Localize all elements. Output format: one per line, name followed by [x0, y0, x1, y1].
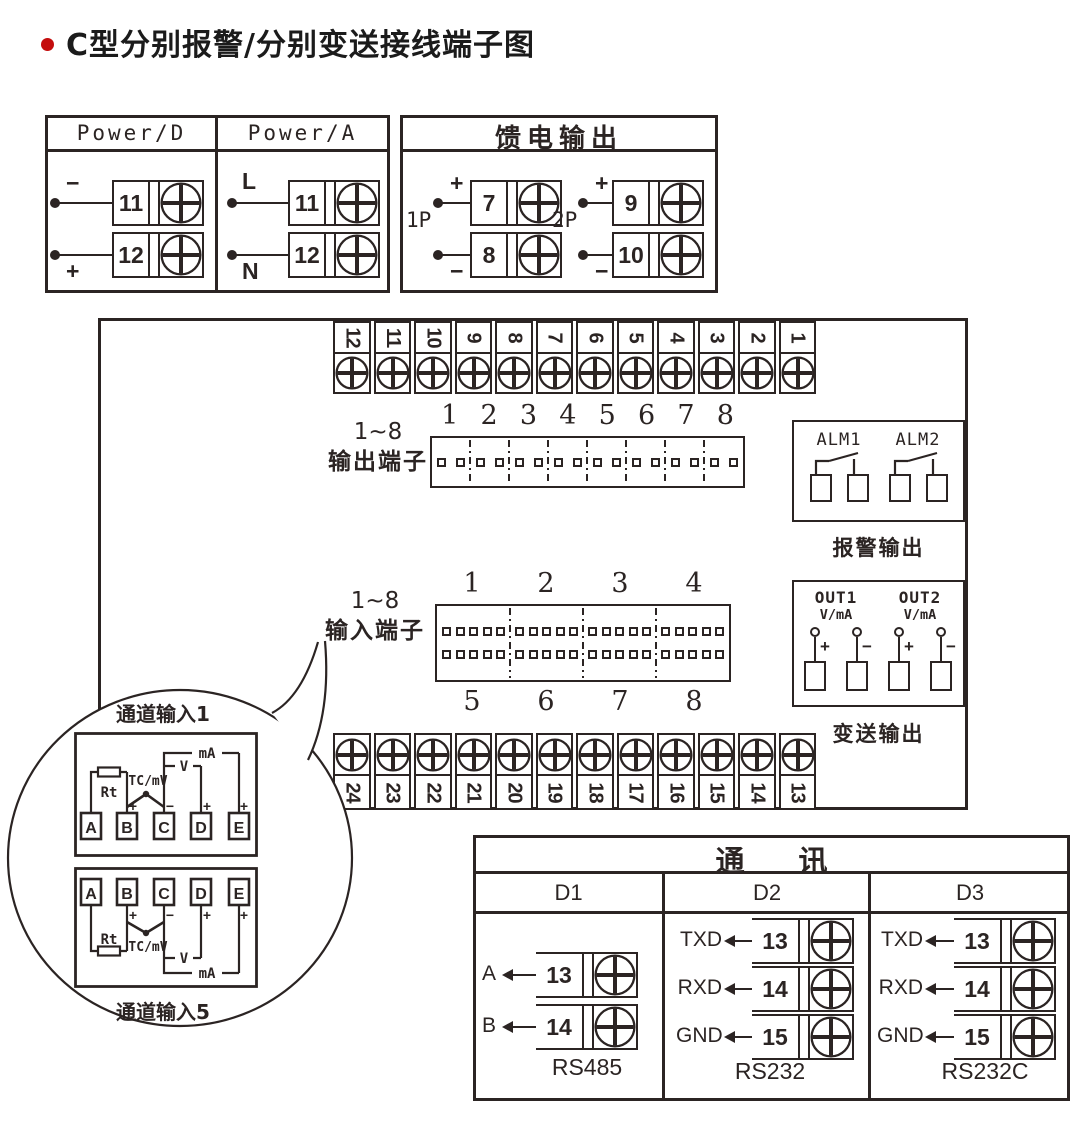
polarity-sign: +	[450, 170, 463, 197]
pin-terminal	[846, 661, 868, 691]
screw-icon	[333, 352, 371, 394]
transmit-group-1: OUT1 V/mA + −	[800, 588, 872, 691]
out-pin-plus: +	[885, 627, 913, 691]
terminal-number: 13	[954, 920, 1000, 962]
output-connector-cell	[626, 438, 665, 486]
transmit-caption: 变送输出	[792, 718, 965, 748]
comm-column-divider	[662, 874, 665, 1101]
group-label: 1P	[406, 208, 431, 232]
out-label: OUT1	[800, 588, 872, 607]
terminal-clamp	[324, 182, 336, 224]
alarm-caption: 报警输出	[792, 532, 965, 562]
svg-text:+: +	[203, 907, 211, 923]
comm-col-d1: D1	[473, 880, 664, 906]
terminal-number: 14	[954, 968, 1000, 1010]
pin-terminal	[930, 661, 952, 691]
strip-cell: 20	[495, 733, 533, 811]
wire	[55, 202, 112, 205]
screw-icon	[594, 1006, 638, 1048]
terminal-clamp	[148, 182, 160, 224]
svg-text:A: A	[85, 886, 97, 903]
terminal-number: 15	[752, 1016, 798, 1058]
feed-output-title: 馈电输出	[400, 118, 718, 155]
line-sign: L	[242, 168, 256, 195]
polarity-sign: +	[66, 258, 79, 285]
svg-text:−: −	[166, 798, 174, 814]
terminal-number: 11	[288, 182, 324, 224]
output-connector-cell	[588, 438, 627, 486]
output-connector-cell	[432, 438, 471, 486]
terminal-number: 13	[752, 920, 798, 962]
terminal-block: 13	[536, 952, 638, 998]
pin-circle-icon	[894, 627, 904, 637]
strip-cell: 1	[779, 321, 817, 394]
comm-signal-label: TXD	[877, 928, 923, 952]
terminal-block: 15	[752, 1014, 854, 1060]
svg-text:+: +	[203, 798, 211, 814]
terminal-number: 12	[112, 234, 148, 276]
terminal-block: 13	[954, 918, 1056, 964]
input-connector-cell	[510, 606, 583, 680]
wire	[55, 254, 112, 257]
output-numbers: 12 34 56 78	[430, 400, 745, 431]
screw-icon	[1012, 1016, 1056, 1058]
arrow-left-icon	[504, 974, 536, 977]
relay-terminal	[847, 474, 869, 502]
terminal-number: 11	[112, 182, 148, 224]
comm-signal-label: RXD	[676, 976, 722, 1000]
arrow-left-icon	[726, 988, 752, 991]
channel1-caption: 通道输入1	[88, 698, 238, 727]
relay-terminals	[810, 474, 869, 502]
terminal-block: 9	[612, 180, 704, 226]
svg-text:−: −	[166, 907, 174, 923]
terminal-clamp	[798, 920, 810, 962]
svg-text:TC/mV: TC/mV	[128, 774, 167, 789]
wire	[583, 202, 612, 205]
polarity-sign: −	[66, 170, 79, 197]
relay-contact-icon	[886, 450, 950, 474]
line-sign: N	[242, 258, 259, 285]
pin-stem	[898, 637, 901, 661]
screw-icon	[594, 954, 638, 996]
svg-text:D: D	[195, 886, 207, 903]
svg-text:V: V	[180, 951, 189, 967]
strip-cell: 17	[617, 733, 655, 811]
screw-icon	[495, 733, 533, 777]
screw-icon	[810, 920, 854, 962]
wire	[438, 202, 470, 205]
channel5-wiring-diagram: Rt TC/mV V mA + − + + A B C D E	[74, 867, 258, 988]
out-pin-minus: −	[927, 627, 955, 691]
channel1-wiring-diagram: Rt TC/mV V mA + − + + A B C D E	[74, 732, 258, 857]
wire	[232, 254, 288, 257]
terminal-clamp	[798, 1016, 810, 1058]
svg-text:B: B	[121, 820, 133, 837]
output-connector-cell	[471, 438, 510, 486]
pin-stem	[856, 637, 859, 661]
terminal-clamp	[648, 182, 660, 224]
svg-text:TC/mV: TC/mV	[128, 940, 167, 955]
terminal-number: 10	[612, 234, 648, 276]
polarity-sign: +	[595, 170, 608, 197]
pin-circle-icon	[852, 627, 862, 637]
top-terminal-strip: 12 11 10 9 8 7 6 5 4 3	[333, 321, 816, 394]
screw-icon	[576, 733, 614, 777]
strip-cell: 11	[374, 321, 412, 394]
terminal-number: 9	[612, 182, 648, 224]
screw-icon	[657, 352, 695, 394]
wire	[583, 254, 612, 257]
strip-cell: 2	[738, 321, 776, 394]
terminal-number: 13	[536, 954, 582, 996]
screw-icon	[698, 733, 736, 777]
screw-icon	[536, 733, 574, 777]
screw-icon	[160, 234, 204, 276]
screw-icon	[160, 182, 204, 224]
terminal-number: 7	[470, 182, 506, 224]
input-connector-cell	[656, 606, 729, 680]
transmit-group-2: OUT2 V/mA + −	[884, 588, 956, 691]
out-pin-plus: +	[801, 627, 829, 691]
pin-circle-icon	[810, 627, 820, 637]
svg-text:Rt: Rt	[101, 932, 118, 948]
arrow-left-icon	[927, 940, 954, 943]
screw-icon	[617, 733, 655, 777]
bus-name: RS485	[527, 1054, 647, 1081]
svg-text:V: V	[180, 759, 189, 775]
screw-icon	[518, 234, 562, 276]
strip-cell: 15	[698, 733, 736, 811]
pin-terminal	[888, 661, 910, 691]
output-connector-cell	[510, 438, 549, 486]
screw-icon	[495, 352, 533, 394]
svg-text:E: E	[234, 886, 245, 903]
screw-icon	[336, 182, 380, 224]
polarity-sign: −	[450, 258, 463, 285]
comm-signal-label: GND	[877, 1024, 923, 1048]
terminal-block: 15	[954, 1014, 1056, 1060]
terminal-number: 12	[288, 234, 324, 276]
strip-cell: 13	[779, 733, 817, 811]
wire	[438, 254, 470, 257]
bus-name: RS232C	[925, 1058, 1045, 1085]
output-terminals-label: 1~8 输出端子	[328, 417, 428, 477]
screw-icon	[698, 352, 736, 394]
screw-icon	[414, 352, 452, 394]
comm-signal-label: B	[450, 1014, 496, 1038]
comm-title-divider	[473, 871, 1070, 874]
strip-cell: 4	[657, 321, 695, 394]
terminal-clamp	[582, 954, 594, 996]
screw-icon	[576, 352, 614, 394]
comm-col-d2: D2	[664, 880, 870, 906]
terminal-clamp	[582, 1006, 594, 1048]
screw-icon	[1012, 920, 1056, 962]
svg-text:+: +	[129, 798, 137, 814]
terminal-clamp	[798, 968, 810, 1010]
relay-terminal	[810, 474, 832, 502]
title-bullet-icon	[41, 38, 54, 51]
comm-signal-label: GND	[676, 1024, 722, 1048]
alarm-label: ALM1	[817, 430, 862, 450]
screw-icon	[660, 234, 704, 276]
power-a-header: Power/A	[218, 121, 387, 145]
terminal-clamp	[1000, 920, 1012, 962]
output-connector	[430, 436, 745, 488]
input-connector-cell	[583, 606, 656, 680]
input-numbers-top: 12 34	[435, 568, 731, 599]
relay-terminals	[889, 474, 948, 502]
terminal-number: 14	[752, 968, 798, 1010]
screw-icon	[617, 352, 655, 394]
comm-signal-label: TXD	[676, 928, 722, 952]
relay-terminal	[926, 474, 948, 502]
strip-cell: 16	[657, 733, 695, 811]
terminal-number: 14	[536, 1006, 582, 1048]
screw-icon	[374, 352, 412, 394]
arrow-left-icon	[927, 988, 954, 991]
svg-text:C: C	[158, 820, 170, 837]
relay-terminal	[889, 474, 911, 502]
out-label: OUT2	[884, 588, 956, 607]
strip-cell: 7	[536, 321, 574, 394]
wire	[232, 202, 288, 205]
channel5-caption: 通道输入5	[88, 996, 238, 1025]
terminal-block: 11	[112, 180, 204, 226]
strip-cell: 18	[576, 733, 614, 811]
terminal-clamp	[148, 234, 160, 276]
relay-contact-icon	[807, 450, 871, 474]
svg-text:A: A	[85, 820, 97, 837]
strip-cell: 9	[455, 321, 493, 394]
strip-cell: 12	[333, 321, 371, 394]
terminal-block: 13	[752, 918, 854, 964]
pin-terminal	[804, 661, 826, 691]
comm-column-divider	[868, 874, 871, 1101]
output-connector-cell	[704, 438, 743, 486]
svg-text:+: +	[240, 907, 248, 923]
arrow-left-icon	[726, 1036, 752, 1039]
svg-text:C: C	[158, 886, 170, 903]
wiring-terminal-diagram: C型分别报警/分别变送接线端子图 Power/D Power/A − 11 + …	[0, 0, 1080, 1137]
svg-text:E: E	[234, 820, 245, 837]
svg-text:mA: mA	[199, 746, 216, 762]
svg-text:+: +	[129, 907, 137, 923]
terminal-block: 10	[612, 232, 704, 278]
screw-icon	[738, 352, 776, 394]
svg-text:mA: mA	[199, 966, 216, 982]
terminal-number: 8	[470, 234, 506, 276]
screw-icon	[810, 1016, 854, 1058]
screw-icon	[536, 352, 574, 394]
screw-icon	[336, 234, 380, 276]
arrow-left-icon	[927, 1036, 954, 1039]
group-label: 2P	[552, 208, 577, 232]
svg-text:Rt: Rt	[101, 785, 118, 801]
page-title: C型分别报警/分别变送接线端子图	[66, 20, 535, 64]
terminal-clamp	[324, 234, 336, 276]
terminal-clamp	[648, 234, 660, 276]
svg-text:+: +	[240, 798, 248, 814]
pin-stem	[814, 637, 817, 661]
comm-col-d3: D3	[870, 880, 1070, 906]
pin-circle-icon	[936, 627, 946, 637]
output-connector-cell	[665, 438, 704, 486]
alarm-label: ALM2	[896, 430, 941, 450]
strip-cell: 19	[536, 733, 574, 811]
terminal-block: 8	[470, 232, 562, 278]
out-pin-minus: −	[843, 627, 871, 691]
screw-icon	[779, 733, 817, 777]
terminal-clamp	[1000, 968, 1012, 1010]
pin-stem	[940, 637, 943, 661]
comm-signal-label: RXD	[877, 976, 923, 1000]
strip-cell: 10	[414, 321, 452, 394]
bus-name: RS232	[710, 1058, 830, 1085]
alarm-group-1: ALM1	[806, 430, 872, 502]
terminal-clamp	[506, 234, 518, 276]
screw-icon	[1012, 968, 1056, 1010]
screw-icon	[657, 733, 695, 777]
svg-text:D: D	[195, 820, 207, 837]
terminal-block: 12	[288, 232, 380, 278]
output-connector-cell	[549, 438, 588, 486]
comm-signal-label: A	[450, 962, 496, 986]
terminal-block: 14	[536, 1004, 638, 1050]
strip-cell: 6	[576, 321, 614, 394]
alarm-group-2: ALM2	[885, 430, 951, 502]
strip-cell: 14	[738, 733, 776, 811]
screw-icon	[455, 352, 493, 394]
rt-resistor-icon	[98, 768, 120, 777]
terminal-block: 11	[288, 180, 380, 226]
comm-header-divider	[473, 911, 1070, 914]
strip-cell: 5	[617, 321, 655, 394]
terminal-block: 14	[752, 966, 854, 1012]
arrow-left-icon	[726, 940, 752, 943]
screw-icon	[779, 352, 817, 394]
terminal-block: 12	[112, 232, 204, 278]
terminal-number: 15	[954, 1016, 1000, 1058]
polarity-sign: −	[595, 258, 608, 285]
power-d-header: Power/D	[48, 121, 215, 145]
terminal-block: 7	[470, 180, 562, 226]
terminal-block: 14	[954, 966, 1056, 1012]
strip-cell: 8	[495, 321, 533, 394]
strip-cell: 3	[698, 321, 736, 394]
out-signal: V/mA	[800, 607, 872, 623]
arrow-left-icon	[504, 1026, 536, 1029]
out-signal: V/mA	[884, 607, 956, 623]
svg-text:B: B	[121, 886, 133, 903]
screw-icon	[660, 182, 704, 224]
terminal-clamp	[506, 182, 518, 224]
terminal-clamp	[1000, 1016, 1012, 1058]
screw-icon	[810, 968, 854, 1010]
screw-icon	[738, 733, 776, 777]
